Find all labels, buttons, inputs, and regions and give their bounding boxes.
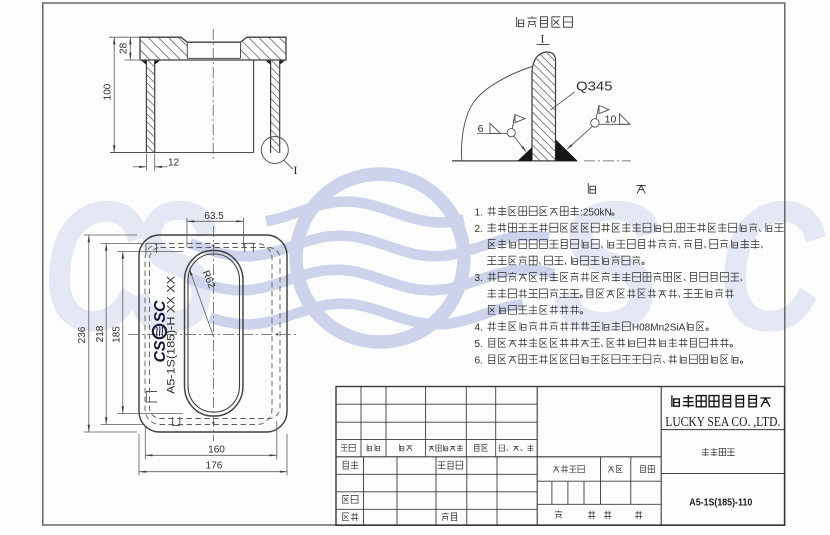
svg-text:1.: 1.	[475, 207, 483, 218]
svg-text:160: 160	[208, 445, 225, 456]
svg-text::250kN: :250kN	[580, 207, 612, 218]
svg-text:LUCKY SEA CO. ,LTD.: LUCKY SEA CO. ,LTD.	[665, 414, 780, 429]
svg-text:185: 185	[111, 326, 122, 343]
svg-text:236: 236	[77, 326, 88, 343]
svg-text:C: C	[717, 164, 826, 370]
svg-text:I: I	[294, 163, 298, 177]
svg-text:5.: 5.	[475, 339, 483, 350]
svg-text:176: 176	[206, 461, 223, 472]
svg-text:A5-1S(185)-H XX XX: A5-1S(185)-H XX XX	[166, 275, 178, 394]
svg-text:63.5: 63.5	[204, 211, 224, 222]
svg-text:100: 100	[103, 83, 114, 100]
svg-text:2.: 2.	[475, 224, 483, 235]
svg-text:6.: 6.	[475, 355, 483, 366]
svg-text:218: 218	[95, 325, 106, 342]
svg-text:,: ,	[673, 224, 676, 235]
svg-text:10: 10	[605, 113, 617, 125]
svg-text:3.: 3.	[475, 273, 483, 284]
svg-text:28: 28	[119, 42, 130, 54]
svg-text:12: 12	[168, 157, 180, 168]
svg-text:6: 6	[478, 123, 484, 135]
svg-text:Q345: Q345	[576, 80, 613, 94]
svg-text:H08Mn2SiA: H08Mn2SiA	[632, 322, 686, 333]
svg-text:A5-1S(185)-110: A5-1S(185)-110	[689, 497, 752, 509]
svg-text:4.: 4.	[475, 322, 483, 333]
svg-text:I: I	[541, 34, 545, 46]
